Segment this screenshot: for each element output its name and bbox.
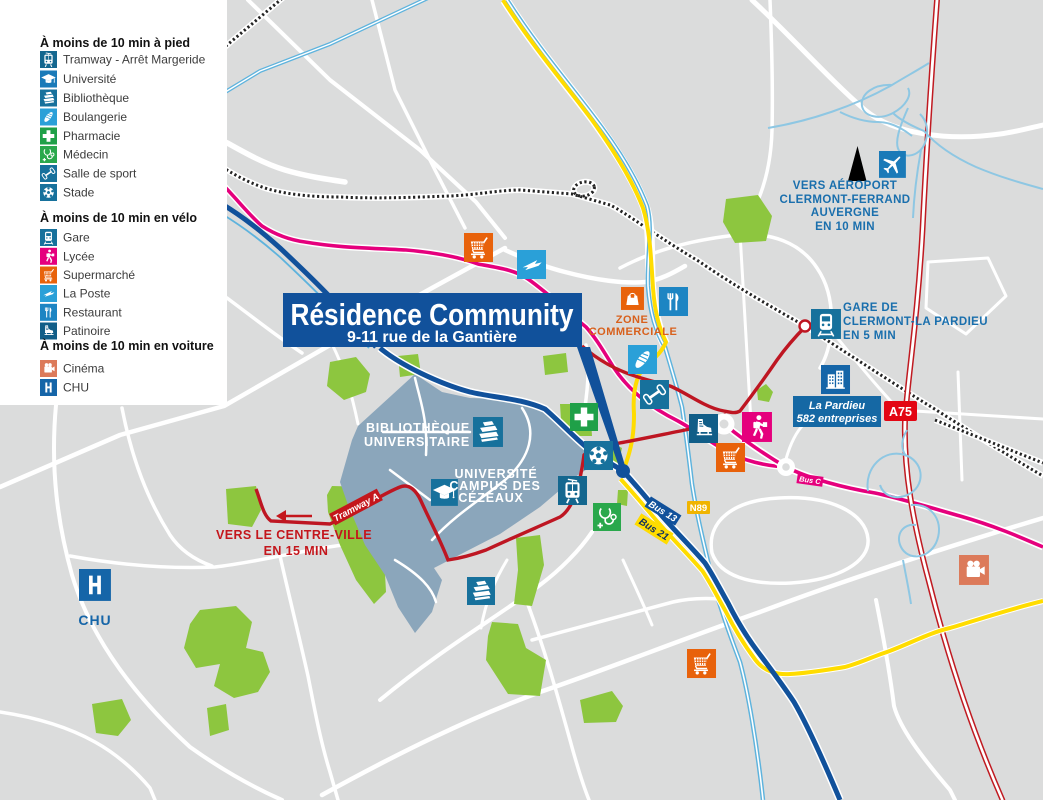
svg-text:Gare: Gare	[63, 231, 90, 245]
svg-text:N89: N89	[690, 503, 707, 514]
svg-text:Université: Université	[63, 72, 117, 86]
svg-text:CÉZEAUX: CÉZEAUX	[458, 490, 523, 505]
svg-text:CHU: CHU	[63, 381, 89, 395]
svg-text:COMMERCIALE: COMMERCIALE	[589, 326, 678, 338]
svg-text:À moins de 10 min en voiture: À moins de 10 min en voiture	[40, 338, 214, 353]
svg-text:EN 5 MIN: EN 5 MIN	[843, 330, 896, 342]
svg-text:Salle de sport: Salle de sport	[63, 167, 137, 181]
svg-text:À moins de 10 min en vélo: À moins de 10 min en vélo	[40, 210, 197, 225]
svg-text:Lycée: Lycée	[63, 249, 95, 263]
svg-text:Patinoire: Patinoire	[63, 324, 111, 338]
svg-text:Médecin: Médecin	[63, 148, 108, 162]
svg-text:Bibliothèque: Bibliothèque	[63, 91, 129, 105]
svg-text:Supermarché: Supermarché	[63, 268, 135, 282]
svg-text:A75: A75	[889, 405, 912, 419]
svg-text:CHU: CHU	[78, 612, 111, 628]
svg-text:Restaurant: Restaurant	[63, 305, 122, 319]
svg-text:CLERMONT-LA PARDIEU: CLERMONT-LA PARDIEU	[843, 316, 988, 328]
svg-text:BIBLIOTHÈQUE: BIBLIOTHÈQUE	[366, 420, 470, 435]
svg-text:CLERMONT-FERRAND: CLERMONT-FERRAND	[780, 194, 911, 206]
svg-text:9-11 rue de la Gantière: 9-11 rue de la Gantière	[347, 329, 517, 346]
svg-text:Pharmacie: Pharmacie	[63, 129, 121, 143]
svg-text:EN 10 MIN: EN 10 MIN	[815, 221, 875, 233]
svg-text:Cinéma: Cinéma	[63, 362, 105, 376]
svg-text:VERS LE CENTRE-VILLE: VERS LE CENTRE-VILLE	[216, 528, 372, 542]
svg-text:Tramway - Arrêt Margeride: Tramway - Arrêt Margeride	[63, 53, 206, 67]
svg-text:ZONE: ZONE	[616, 314, 649, 326]
svg-text:582 entreprises: 582 entreprises	[797, 413, 878, 425]
svg-text:GARE DE: GARE DE	[843, 302, 898, 314]
svg-text:AUVERGNE: AUVERGNE	[811, 207, 879, 219]
svg-text:Boulangerie: Boulangerie	[63, 110, 127, 124]
svg-text:À moins de 10 min à pied: À moins de 10 min à pied	[40, 35, 190, 50]
svg-text:UNIVERSITAIRE: UNIVERSITAIRE	[364, 435, 470, 449]
svg-text:EN 15 MIN: EN 15 MIN	[264, 544, 329, 558]
svg-text:VERS AÉROPORT: VERS AÉROPORT	[793, 179, 897, 192]
svg-text:Stade: Stade	[63, 186, 95, 200]
svg-text:La Poste: La Poste	[63, 287, 111, 301]
svg-text:Résidence Community: Résidence Community	[291, 297, 575, 332]
svg-text:La Pardieu: La Pardieu	[809, 400, 866, 412]
